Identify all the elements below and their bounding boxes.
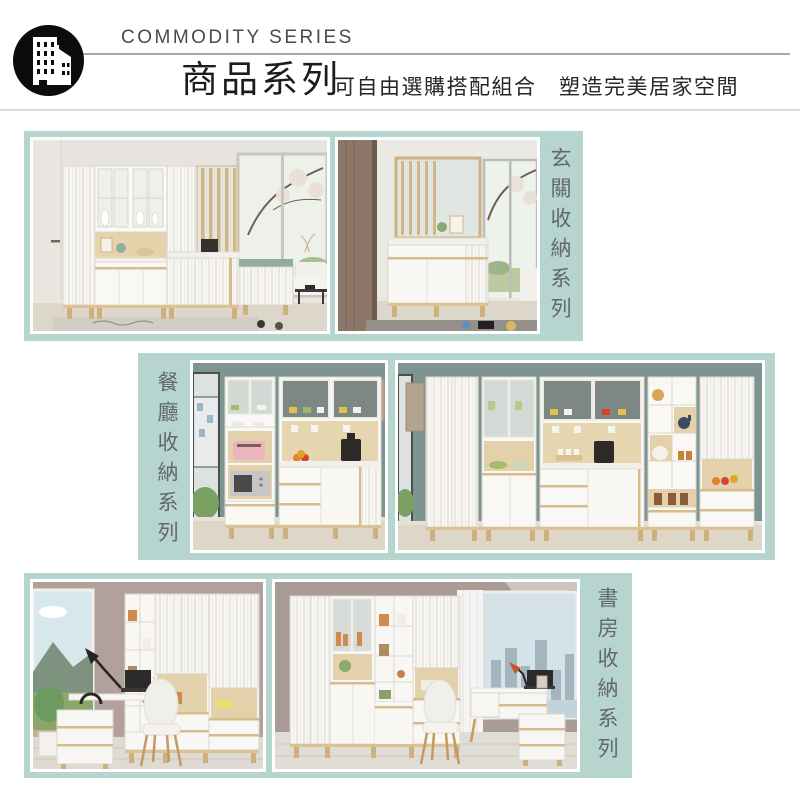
photo-entryway-combination xyxy=(30,137,330,334)
section-title-dining: 餐廳收納系列 xyxy=(154,371,178,551)
photo-study-desk-small xyxy=(30,579,266,772)
photo-dining-hutch-small xyxy=(190,360,388,553)
dining-hutch-small-illustration xyxy=(193,363,385,550)
section-entryway: 玄關收納系列 xyxy=(24,131,583,341)
section-dining: 餐廳收納系列 xyxy=(138,353,775,560)
building-logo-icon xyxy=(13,25,84,96)
commodity-series-page: COMMODITY SERIES 商品系列 可自由選購搭配組合 塑造完美居家空間 xyxy=(0,0,800,800)
photo-study-wall-unit-large xyxy=(272,579,580,772)
study-desk-small-illustration xyxy=(33,582,263,769)
series-tagline: 可自由選購搭配組合 塑造完美居家空間 xyxy=(334,77,739,98)
header-rule xyxy=(83,53,790,55)
photo-dining-wall-unit-large xyxy=(395,360,765,553)
study-wall-unit-illustration xyxy=(275,582,577,769)
section-title-entryway: 玄關收納系列 xyxy=(547,147,571,327)
header-divider xyxy=(0,109,800,111)
entryway-cabinet-illustration xyxy=(338,140,537,331)
series-title-zh: 商品系列 xyxy=(181,61,341,98)
entryway-combination-illustration xyxy=(33,140,327,331)
section-title-study: 書房收納系列 xyxy=(594,587,618,767)
series-title-en: COMMODITY SERIES xyxy=(121,27,354,49)
section-study: 書房收納系列 xyxy=(24,573,632,778)
photo-entryway-cabinet xyxy=(335,137,540,334)
dining-wall-unit-illustration xyxy=(398,363,762,550)
